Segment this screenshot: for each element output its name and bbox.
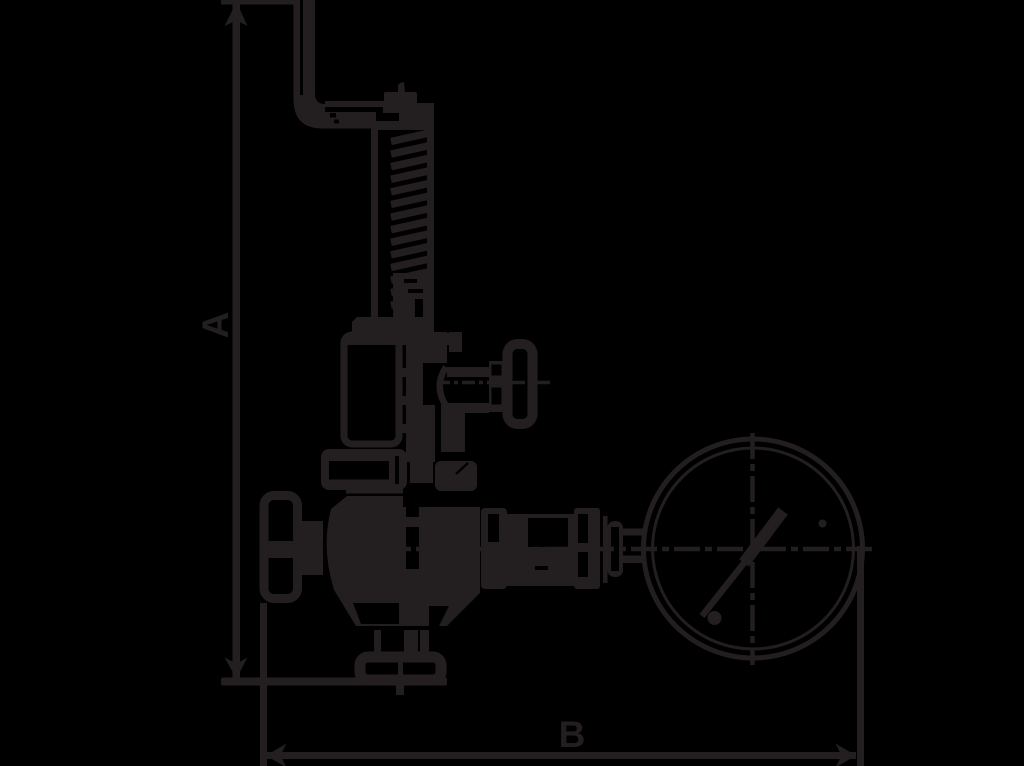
svg-text:B: B xyxy=(559,714,586,755)
svg-text:A: A xyxy=(195,312,236,339)
